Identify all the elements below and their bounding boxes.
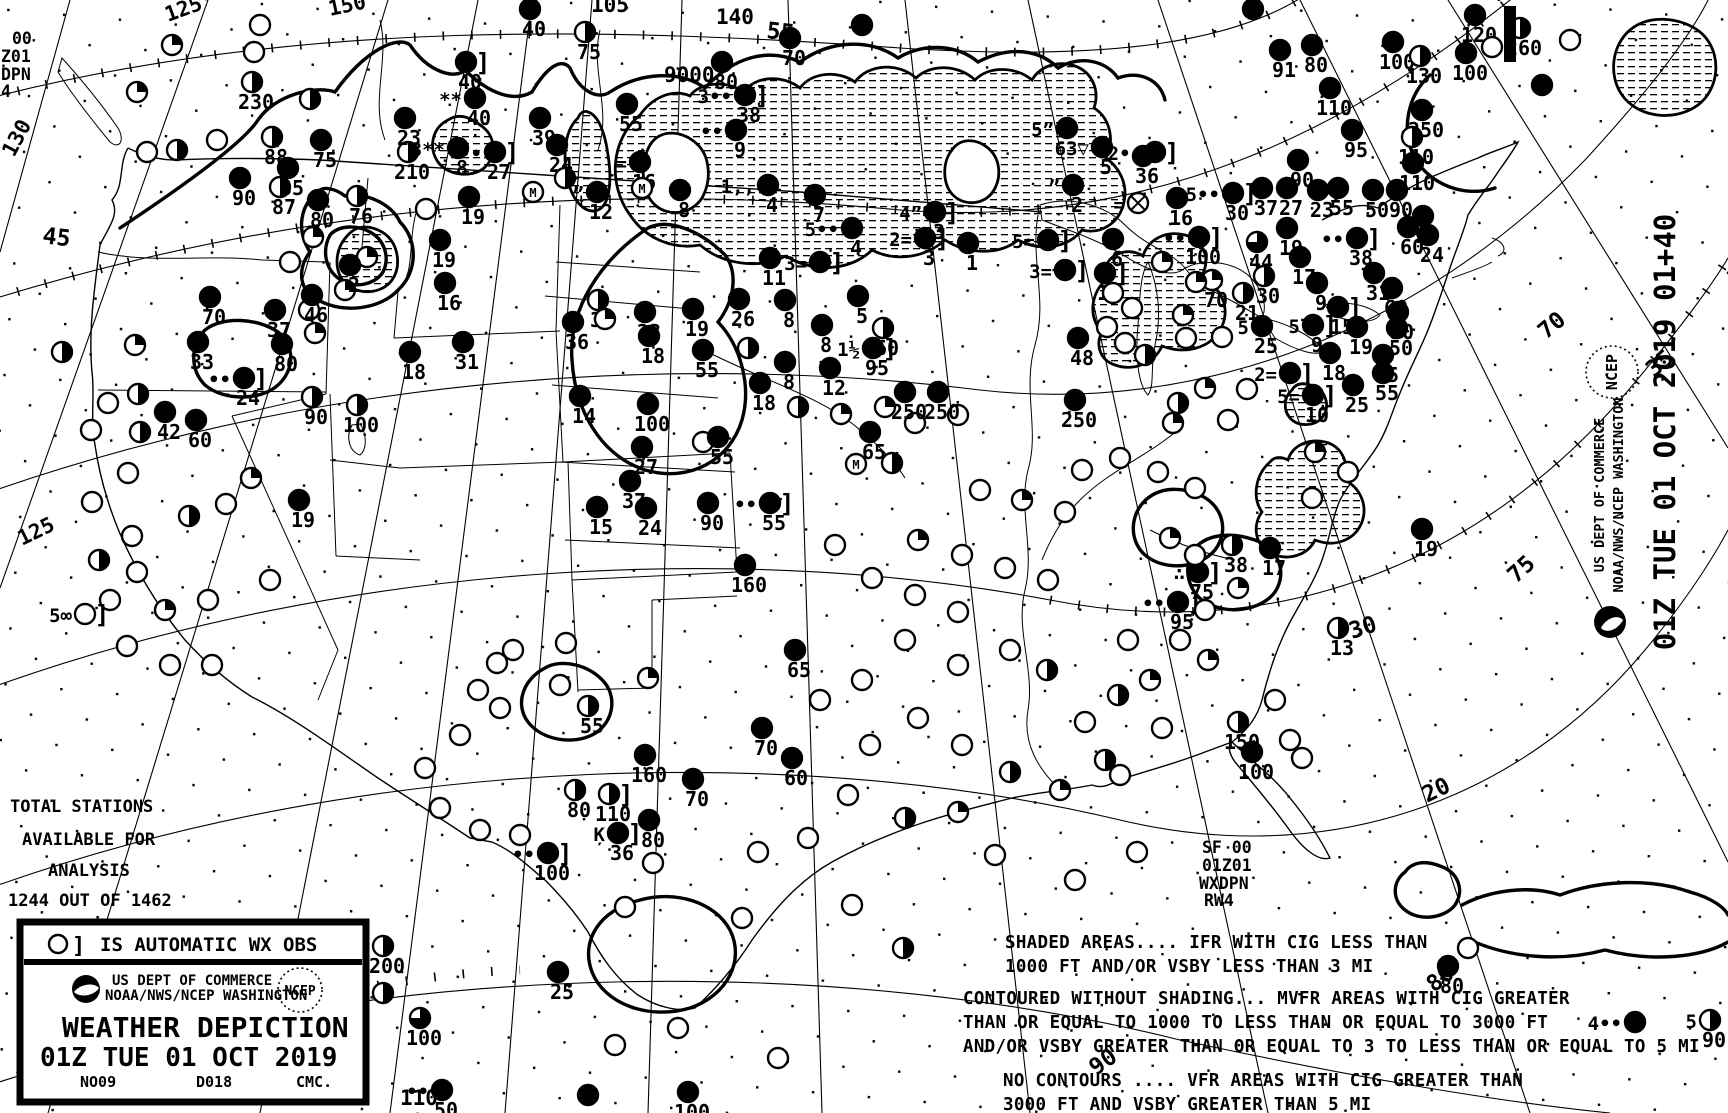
ceiling-value: 55	[695, 358, 719, 382]
station-plot	[89, 550, 109, 570]
station-plot	[81, 420, 101, 440]
station-plot	[118, 463, 138, 483]
svg-text:M: M	[529, 186, 536, 200]
station-plot	[1075, 712, 1095, 732]
station-plot	[470, 820, 490, 840]
station-plot	[1163, 413, 1183, 433]
auto-obs-bracket: ]	[944, 198, 959, 227]
wx-symbol: 3=	[1029, 261, 1052, 283]
ceiling-value: 9	[1311, 333, 1323, 357]
station-plot	[1532, 75, 1552, 95]
ceiling-value: 250	[891, 400, 927, 424]
wx-symbol: ••	[1163, 228, 1186, 250]
auto-obs-bracket: ]	[1208, 223, 1223, 252]
wx-symbol: =	[1114, 194, 1125, 216]
station-plot	[198, 590, 218, 610]
station-plot	[970, 480, 990, 500]
wx-symbol: 4••	[1588, 1013, 1622, 1035]
ceiling-value: 100	[406, 1026, 442, 1050]
note-line: 3000 FT AND VSBY GREATER THAN 5 MI	[1003, 1095, 1371, 1113]
auto-obs-bracket: ]	[94, 600, 109, 629]
wx-symbol: ••	[700, 121, 723, 143]
station-plot	[260, 570, 280, 590]
wx-symbol: 4”	[899, 203, 922, 225]
neatline-mark	[1504, 6, 1516, 62]
ceiling-value: 80	[1304, 53, 1328, 77]
station-plot	[1176, 328, 1196, 348]
ceiling-value: 1	[966, 251, 978, 275]
ceiling-value: 76	[349, 204, 373, 228]
ceiling-value: 60	[784, 766, 808, 790]
station-plot	[1097, 317, 1117, 337]
note-line: AND/OR VSBY GREATER THAN OR EQUAL TO 3 T…	[963, 1037, 1700, 1057]
station-plot	[1108, 685, 1128, 705]
ceiling-value: 160	[731, 573, 767, 597]
wx-symbol: **	[439, 89, 462, 111]
ceiling-value: 11	[762, 266, 786, 290]
station-plot	[738, 338, 758, 358]
ceiling-value: 40	[467, 106, 491, 130]
station-plot	[895, 808, 915, 828]
legend-agency: NOAA/NWS/NCEP WASHINGTON	[105, 988, 307, 1004]
wx-symbol: 1½	[837, 339, 860, 361]
wx-symbol: 5	[1686, 1011, 1697, 1033]
station-plot	[1243, 0, 1263, 19]
ceiling-value: 8	[678, 198, 690, 222]
wx-symbol: ••	[1142, 593, 1165, 615]
legend-code-left: NO09	[80, 1073, 116, 1091]
station-plot	[1055, 502, 1075, 522]
station-plot	[1095, 750, 1115, 770]
station-plot	[373, 983, 393, 1003]
total-stations-line: 1244 OUT OF 1462	[8, 891, 172, 911]
ceiling-value: 30	[1256, 284, 1280, 308]
wx-symbol: ••	[512, 844, 535, 866]
wx-symbol: Ķ	[594, 824, 606, 846]
ceiling-value: 36	[1135, 164, 1159, 188]
svg-text:NCEP: NCEP	[284, 984, 315, 999]
ceiling-value: 95	[1344, 138, 1368, 162]
wx-symbol: ••	[734, 494, 757, 516]
svg-text:NCEP: NCEP	[1603, 354, 1621, 390]
sf-line: RW4	[1204, 891, 1234, 910]
weather-depiction-chart: 23088758590878076210231933703746224••]80…	[0, 0, 1728, 1113]
ceiling-value: 8	[783, 308, 795, 332]
legend-box: ] IS AUTOMATIC WX OBS US DEPT OF COMMERC…	[20, 922, 366, 1102]
station-plot	[638, 668, 658, 688]
ceiling-value: 70	[685, 787, 709, 811]
ceiling-value: 110	[1399, 171, 1435, 195]
sf-line: SF 00	[1202, 838, 1252, 857]
station-plot	[768, 1048, 788, 1068]
legend-datetime: 01Z TUE 01 OCT 2019	[40, 1043, 337, 1073]
station-plot	[117, 636, 137, 656]
ceiling-value: 9	[734, 138, 746, 162]
total-stations-line: ANALYSIS	[48, 861, 130, 881]
side-datetime: 01Z TUE 01 OCT 2019 01+40	[1648, 214, 1682, 651]
ceiling-value: 25	[550, 980, 574, 1004]
station-plot	[810, 690, 830, 710]
corner-line: 4	[1, 82, 11, 101]
station-plot	[1012, 490, 1032, 510]
station-plot	[838, 785, 858, 805]
graticule-label: 55	[765, 18, 795, 47]
ceiling-value: 16	[1169, 206, 1193, 230]
station-plot	[207, 130, 227, 150]
station-plot	[125, 335, 145, 355]
ceiling-value: 80	[274, 352, 298, 376]
wx-symbol: ”	[573, 183, 584, 205]
auto-obs-bracket: ]	[504, 138, 519, 167]
auto-obs-bracket: ]	[882, 334, 897, 363]
station-plot	[82, 492, 102, 512]
wx-symbol: 5	[1238, 317, 1249, 339]
ceiling-value: 100	[634, 412, 670, 436]
ceiling-value: 18	[752, 391, 776, 415]
legend-dept: US DEPT OF COMMERCE	[112, 973, 272, 989]
ceiling-value: 12	[822, 376, 846, 400]
station-plot	[1305, 442, 1325, 462]
ceiling-value: 36	[565, 330, 589, 354]
station-plot	[908, 708, 928, 728]
station-plot	[668, 1018, 688, 1038]
station-plot	[615, 897, 635, 917]
total-stations-line: TOTAL STATIONS	[10, 797, 153, 817]
ceiling-value: 70	[1204, 288, 1228, 312]
wx-symbol: 2=	[889, 229, 912, 251]
graticule-label: 110	[400, 1086, 438, 1110]
station-plot	[160, 655, 180, 675]
station-plot	[555, 168, 575, 188]
station-plot	[1135, 345, 1155, 365]
auto-obs-bracket: ]	[1322, 381, 1337, 410]
ceiling-value: 12	[589, 200, 613, 224]
station-plot	[798, 828, 818, 848]
station-plot	[1168, 393, 1188, 413]
side-dept: US DEPT OF COMMERCE	[1592, 418, 1608, 572]
ceiling-value: 130	[1406, 64, 1442, 88]
station-plot	[162, 35, 182, 55]
graticule-label: 105	[591, 0, 629, 17]
station-plot	[127, 82, 147, 102]
auto-obs-bracket: ]	[1164, 138, 1179, 167]
ceiling-value: 38	[1224, 553, 1248, 577]
graticule-label: 140	[716, 5, 754, 29]
ceiling-value: 25	[1345, 393, 1369, 417]
auto-obs-bracket: ]	[72, 934, 85, 959]
station-plot	[1170, 630, 1190, 650]
station-plot	[893, 938, 913, 958]
station-plot	[1103, 283, 1123, 303]
station-plot: M	[523, 182, 543, 202]
sf-line: 01Z01	[1202, 856, 1252, 875]
station-plot	[1072, 460, 1092, 480]
station-plot	[825, 535, 845, 555]
note-line: CONTOURED WITHOUT SHADING... MVFR AREAS …	[963, 989, 1570, 1009]
ceiling-value: 24	[638, 516, 662, 540]
station-plot	[788, 397, 808, 417]
ceiling-value: 80	[567, 798, 591, 822]
station-plot	[250, 15, 270, 35]
ceiling-value: 4	[766, 193, 778, 217]
station-plot	[1148, 462, 1168, 482]
side-agency: NOAA/NWS/NCEP WASHINGTON	[1611, 397, 1627, 592]
station-plot	[303, 227, 323, 247]
station-plot	[430, 798, 450, 818]
wx-symbol: 5••	[1186, 184, 1220, 206]
station-plot	[415, 758, 435, 778]
station-plot	[1118, 630, 1138, 650]
station-plot	[860, 735, 880, 755]
wx-symbol: ••	[1321, 229, 1344, 251]
ceiling-value: 91	[1272, 58, 1296, 82]
auto-obs-symbol-icon	[49, 935, 67, 953]
ceiling-value: 16	[437, 291, 461, 315]
wx-symbol: 2=	[1254, 364, 1277, 386]
station-plot	[550, 675, 570, 695]
station-plot	[52, 342, 72, 362]
wx-symbol: 5	[1289, 316, 1300, 338]
ceiling-value: 50	[1365, 198, 1389, 222]
ceiling-value: 90	[1290, 168, 1314, 192]
station-plot	[852, 15, 872, 35]
ceiling-value: 75	[313, 148, 337, 172]
station-plot	[244, 42, 264, 62]
wx-symbol: 3**	[411, 139, 445, 161]
ceiling-value: 18	[402, 360, 426, 384]
station-plot	[948, 602, 968, 622]
station-plot	[179, 506, 199, 526]
station-plot	[1195, 378, 1215, 398]
ceiling-value: 210	[394, 160, 430, 184]
station-plot	[1195, 600, 1215, 620]
station-plot	[1140, 670, 1160, 690]
ceiling-value: 42	[157, 420, 181, 444]
station-plot	[1000, 640, 1020, 660]
station-plot	[895, 630, 915, 650]
station-plot	[1186, 272, 1206, 292]
ceiling-value: 90	[1702, 1028, 1726, 1052]
station-plot	[643, 853, 663, 873]
station-plot	[1212, 327, 1232, 347]
ceiling-value: 37	[1254, 196, 1278, 220]
station-plot	[155, 600, 175, 620]
ceiling-value: 87	[272, 195, 296, 219]
station-plot	[416, 199, 436, 219]
ceiling-value: 250	[924, 400, 960, 424]
ceiling-value: 19	[291, 508, 315, 532]
ceiling-value: 60	[188, 428, 212, 452]
auto-obs-bracket: ]	[618, 780, 633, 809]
ceiling-value: 19	[1349, 335, 1373, 359]
station-plot	[487, 653, 507, 673]
station-plot	[1185, 478, 1205, 498]
ceiling-value: 250	[1061, 408, 1097, 432]
corner-line: 00	[12, 29, 32, 48]
ceiling-value: 230	[238, 90, 274, 114]
station-plot	[1152, 252, 1172, 272]
station-plot	[202, 655, 222, 675]
station-plot	[1037, 660, 1057, 680]
ceiling-value: 90	[304, 405, 328, 429]
note-line: 1000 FT AND/OR VSBY LESS THAN 3 MI	[1005, 957, 1373, 977]
ceiling-value: 31	[455, 350, 479, 374]
ceiling-value: 46	[304, 303, 328, 327]
ceiling-value: 70	[782, 46, 806, 70]
ceiling-value: 27	[1279, 196, 1303, 220]
ceiling-value: 13	[1330, 636, 1354, 660]
ceiling-value: 25	[1254, 334, 1278, 358]
station-plot	[468, 680, 488, 700]
wx-symbol: 5=	[1012, 231, 1035, 253]
station-plot	[1482, 37, 1502, 57]
svg-text:M: M	[852, 458, 859, 472]
station-plot: 4••	[1588, 1012, 1645, 1035]
ceiling-value: 7	[813, 203, 825, 227]
station-plot	[995, 558, 1015, 578]
station-plot	[122, 526, 142, 546]
station-plot	[241, 468, 261, 488]
auto-obs-bracket: ]	[1299, 359, 1314, 388]
station-plot	[1292, 748, 1312, 768]
station-plot	[1302, 488, 1322, 508]
station-plot	[450, 725, 470, 745]
ceiling-value: 15	[589, 515, 613, 539]
legend-title: WEATHER DEPICTION	[62, 1011, 349, 1044]
ceiling-value: 55	[580, 714, 604, 738]
auto-obs-bracket: ]	[1074, 256, 1089, 285]
station-plot	[831, 404, 851, 424]
wx-symbol: ∴	[1174, 563, 1185, 585]
station-plot	[1000, 762, 1020, 782]
auto-obs-bracket: ]	[1057, 226, 1072, 255]
ceiling-value: 55	[710, 445, 734, 469]
wx-symbol: 63▽	[1055, 138, 1090, 160]
station-plot	[128, 384, 148, 404]
ceiling-value: 200	[369, 954, 405, 978]
auto-obs-bracket: ]	[253, 364, 268, 393]
station-plot	[862, 568, 882, 588]
station-plot	[137, 142, 157, 162]
ceiling-value: 75	[577, 40, 601, 64]
station-plot	[556, 633, 576, 653]
ceiling-value: 17	[1262, 556, 1286, 580]
wx-symbol: 5=	[1277, 386, 1300, 408]
ceiling-value: 100	[1238, 760, 1274, 784]
station-plot	[1038, 570, 1058, 590]
graticule-label: 45	[41, 223, 72, 252]
ceiling-value: 48	[1070, 346, 1094, 370]
auto-obs-bracket: ]	[557, 839, 572, 868]
station-plot	[748, 842, 768, 862]
ceiling-value: 8	[820, 333, 832, 357]
station-plot	[1122, 298, 1142, 318]
station-plot	[578, 1085, 598, 1105]
station-plot	[1560, 30, 1580, 50]
auto-obs-bracket: ]	[934, 224, 949, 253]
auto-obs-bracket: ]	[779, 489, 794, 518]
ceiling-value: 19	[461, 205, 485, 229]
station-plot	[948, 655, 968, 675]
ceiling-value: 55	[1375, 381, 1399, 405]
ceiling-value: 2	[348, 273, 360, 297]
station-plot	[985, 845, 1005, 865]
total-stations-line: AVAILABLE FOR	[22, 830, 156, 850]
station-plot	[595, 309, 615, 329]
station-plot	[1228, 578, 1248, 598]
station-plot	[952, 735, 972, 755]
station-plot	[510, 825, 530, 845]
wx-symbol: 5”	[1031, 119, 1054, 141]
station-plot	[130, 422, 150, 442]
station-plot	[167, 140, 187, 160]
station-plot	[300, 89, 320, 109]
station-plot	[1110, 448, 1130, 468]
ceiling-value: 24	[1420, 243, 1444, 267]
auto-obs-bracket: ]	[754, 81, 769, 110]
wx-symbol: =	[616, 153, 627, 175]
wx-symbol: ••	[208, 369, 231, 391]
ceiling-value: 8	[783, 370, 795, 394]
ceiling-value: 3	[923, 246, 935, 270]
legend-code-right: CMC.	[296, 1073, 332, 1091]
auto-obs-bracket: ]	[1207, 558, 1222, 587]
station-plot	[1237, 379, 1257, 399]
ceiling-value: 19	[685, 317, 709, 341]
wx-symbol: ”	[1049, 176, 1060, 198]
auto-obs-bracket: ]	[1322, 311, 1337, 340]
chart-canvas: 23088758590878076210231933703746224••]80…	[0, 0, 1728, 1113]
station-plot	[905, 585, 925, 605]
ceiling-value: 100	[343, 413, 379, 437]
station-plot	[1265, 690, 1285, 710]
legend-code-mid: D018	[196, 1073, 232, 1091]
ceiling-value: 100	[1452, 61, 1488, 85]
ceiling-value: 80	[714, 70, 738, 94]
station-plot	[1115, 333, 1135, 353]
station-plot	[1185, 545, 1205, 565]
station-plot	[1280, 730, 1300, 750]
station-plot	[1338, 462, 1358, 482]
auto-obs-bracket: ]	[1366, 224, 1381, 253]
ceiling-value: 5	[856, 304, 868, 328]
station-plot	[852, 670, 872, 690]
auto-obs-label: IS AUTOMATIC WX OBS	[100, 934, 317, 956]
wx-symbol: 1,,	[721, 176, 755, 198]
wx-symbol: ••	[459, 143, 482, 165]
auto-obs-bracket: ]	[829, 248, 844, 277]
station-plot	[1152, 718, 1172, 738]
ceiling-value: 19	[1414, 537, 1438, 561]
station-plot	[952, 545, 972, 565]
station-plot	[605, 1035, 625, 1055]
ceiling-value: 90	[700, 511, 724, 535]
station-plot	[1458, 938, 1478, 958]
ceiling-value: 40	[522, 17, 546, 41]
ceiling-value: 160	[631, 763, 667, 787]
ceiling-value: 65	[787, 658, 811, 682]
station-plot	[1127, 842, 1147, 862]
svg-text:M: M	[638, 182, 645, 196]
auto-obs-bracket: ]	[627, 819, 642, 848]
wx-symbol: 2••	[1108, 143, 1142, 165]
station-plot	[98, 393, 118, 413]
wx-symbol: 3=	[784, 253, 807, 275]
station-plot: M	[632, 178, 652, 198]
station-plot	[1160, 528, 1180, 548]
ceiling-value: 70	[202, 305, 226, 329]
auto-obs-bracket: ]	[475, 48, 490, 77]
